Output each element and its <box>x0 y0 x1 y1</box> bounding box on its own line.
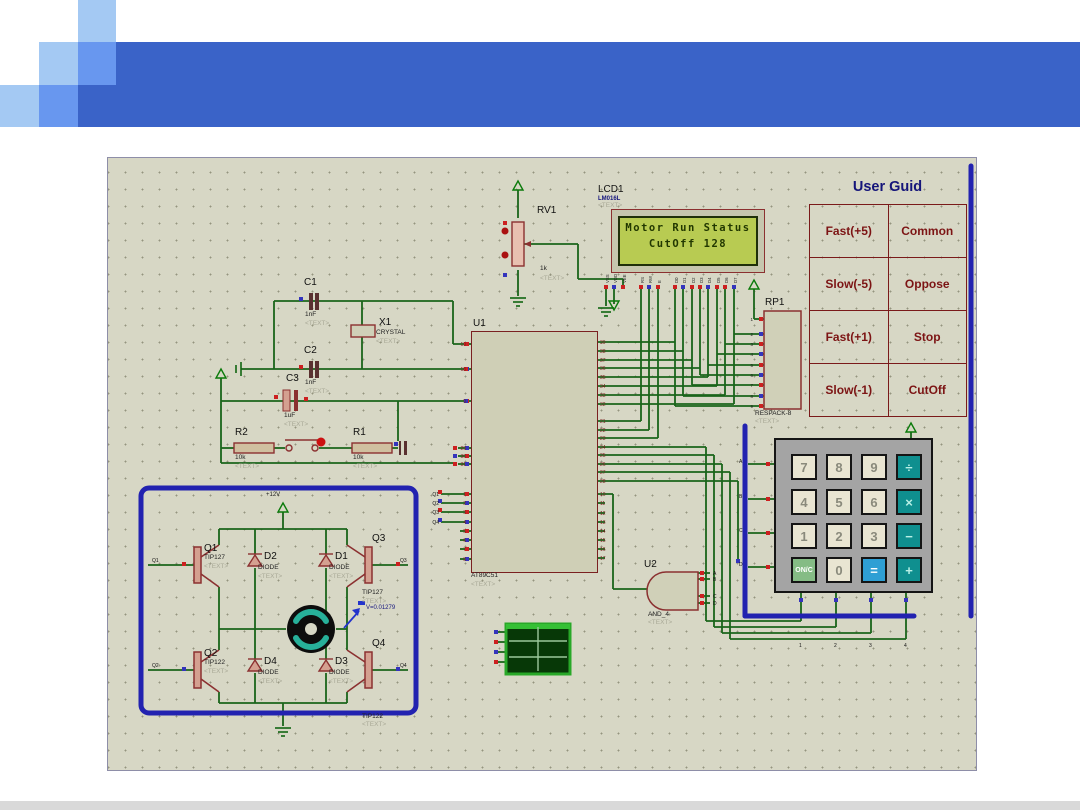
pot-pad <box>502 252 509 259</box>
header-square-light-1 <box>78 0 116 42</box>
tiny-label: Q4 <box>400 663 407 669</box>
tiny-label: 8 <box>463 557 466 563</box>
user-guide-row: Slow(-1)CutOff <box>810 364 967 417</box>
tiny-label: Q4 <box>432 520 439 526</box>
pin-square <box>799 598 803 602</box>
pin-square <box>700 594 704 598</box>
pin-square <box>732 285 736 289</box>
pin-square <box>759 317 763 321</box>
placeholder-text: <TEXT> <box>258 679 282 686</box>
pin-square <box>706 285 710 289</box>
key-ON/C[interactable]: ON/C <box>791 557 817 583</box>
pin-square <box>700 601 704 605</box>
keypad-body[interactable]: 789÷456×123−ON/C0=+ <box>774 438 933 593</box>
x1-part: CRYSTAL <box>376 330 405 337</box>
tiny-label: 5 <box>463 529 466 535</box>
tiny-label: 30 <box>460 454 466 460</box>
r1-value: 10k <box>353 455 363 462</box>
tiny-label: 24 <box>600 445 606 451</box>
tiny-label: 4 <box>904 643 907 649</box>
tiny-label: E <box>657 280 662 283</box>
header-bar <box>116 42 1080 127</box>
placeholder-text: <TEXT> <box>284 422 308 429</box>
key-3[interactable]: 3 <box>861 523 887 549</box>
c2-value: 1nF <box>305 380 316 387</box>
placeholder-text: <TEXT> <box>204 564 228 571</box>
tiny-label: 26 <box>600 462 606 468</box>
tiny-label: 29 <box>460 446 466 452</box>
tiny-label: 6 <box>463 538 466 544</box>
d3-ref: D3 <box>335 657 348 667</box>
placeholder-text: <TEXT> <box>755 419 779 426</box>
q2-ref: Q2 <box>204 649 217 659</box>
pin-square <box>612 285 616 289</box>
u2-part: AND_4 <box>648 612 669 619</box>
tiny-label: 1 <box>463 492 466 498</box>
pin-square <box>274 395 278 399</box>
placeholder-text: <TEXT> <box>598 203 622 210</box>
pin-square <box>681 285 685 289</box>
pin-square <box>766 565 770 569</box>
tiny-label: D6 <box>724 277 729 283</box>
transistor-q2[interactable] <box>194 652 201 688</box>
key-4[interactable]: 4 <box>791 489 817 515</box>
header-bar-step <box>78 85 116 127</box>
pot-ref: RV1 <box>537 206 556 216</box>
pin-square <box>759 383 763 387</box>
tiny-label: VSS <box>605 274 610 283</box>
pin-square <box>182 562 186 566</box>
placeholder-text: <TEXT> <box>305 321 329 328</box>
tiny-label: 2 <box>463 501 466 507</box>
tiny-label: D5 <box>716 277 721 283</box>
pin-square <box>673 285 677 289</box>
tiny-label: Q2 <box>152 663 159 669</box>
tiny-label: VEE <box>622 274 627 283</box>
pin-square <box>604 285 608 289</box>
pin-square <box>698 285 702 289</box>
pin-square <box>759 352 763 356</box>
tiny-label: 17 <box>600 556 606 562</box>
key-8[interactable]: 8 <box>826 454 852 480</box>
tiny-label: 27 <box>600 470 606 476</box>
key-0[interactable]: 0 <box>826 557 852 583</box>
pin-square <box>494 650 498 654</box>
d4-ref: D4 <box>264 657 277 667</box>
header-square-light-3 <box>0 85 39 127</box>
mcu-ref: U1 <box>473 319 486 329</box>
tiny-label: 19 <box>460 342 466 348</box>
tiny-label: 1 <box>750 317 753 322</box>
button-cap <box>317 438 326 447</box>
user-guide-table: Fast(+5)CommonSlow(-5)OpposeFast(+1)Stop… <box>809 204 967 417</box>
x1-ref: X1 <box>379 318 391 328</box>
tiny-label: 9 <box>463 399 466 405</box>
tiny-label: 28 <box>600 479 606 485</box>
q4-part: TIP122 <box>362 714 383 721</box>
tiny-label: D3 <box>699 277 704 283</box>
header-square-mid-2 <box>39 85 78 127</box>
transistor-q3[interactable] <box>365 547 372 583</box>
r2-ref: R2 <box>235 428 248 438</box>
placeholder-text: <TEXT> <box>329 574 353 581</box>
tiny-label: 7 <box>463 547 466 553</box>
led-display[interactable] <box>506 624 570 674</box>
d2-part: DIODE <box>258 565 279 572</box>
and-gate-u2[interactable] <box>647 572 698 610</box>
q3-part: TIP127 <box>362 590 383 597</box>
tiny-label: 38 <box>600 349 606 355</box>
push-button[interactable] <box>285 440 319 451</box>
pin-square <box>453 454 457 458</box>
tiny-label: 31 <box>460 462 466 468</box>
rp1-ref: RP1 <box>765 298 784 308</box>
tiny-label: D <box>713 601 717 607</box>
pin-square <box>304 397 308 401</box>
tiny-label: +12V <box>266 492 280 498</box>
header-square-mid-1 <box>78 42 116 85</box>
user-guide-cell-left-3: Slow(-1) <box>810 364 889 417</box>
placeholder-text: <TEXT> <box>329 679 353 686</box>
transistor-q1[interactable] <box>194 547 201 583</box>
c2-ref: C2 <box>304 346 317 356</box>
pin-square <box>453 446 457 450</box>
tiny-label: 21 <box>600 419 606 425</box>
key-7[interactable]: 7 <box>791 454 817 480</box>
d1-part: DIODE <box>329 565 350 572</box>
tiny-label: 39 <box>600 340 606 346</box>
motor-hub <box>305 623 317 635</box>
u2-ref: U2 <box>644 560 657 570</box>
capacitor-c3[interactable] <box>283 390 298 411</box>
crystal-x1[interactable] <box>351 325 375 337</box>
mcu-u1-body[interactable] <box>471 331 598 573</box>
lcd-line1: Motor Run Status <box>620 222 756 234</box>
q3-ref: Q3 <box>372 534 385 544</box>
lcd-screen: Motor Run Status CutOff 128 <box>618 216 758 266</box>
user-guide-row: Fast(+5)Common <box>810 205 967 258</box>
user-guide-row: Fast(+1)Stop <box>810 311 967 364</box>
tiny-label: D1 <box>682 277 687 283</box>
presentation-slide: 19XTAL118XTAL29RST29PSEN30ALE31EA1P1.02P… <box>0 0 1080 810</box>
resistor-r1[interactable] <box>352 443 392 453</box>
tiny-label: 36 <box>600 366 606 372</box>
tiny-label: B <box>713 577 717 583</box>
pin-square <box>766 497 770 501</box>
pin-square <box>904 598 908 602</box>
tiny-label: 33 <box>600 393 606 399</box>
pin-square <box>494 630 498 634</box>
tiny-label: VDD <box>613 274 618 283</box>
placeholder-text: <TEXT> <box>648 620 672 627</box>
pin-square <box>621 285 625 289</box>
user-guide-cell-left-1: Slow(-5) <box>810 258 889 311</box>
tiny-label: 35 <box>600 375 606 381</box>
tiny-label: 3 <box>869 643 872 649</box>
tiny-label: Q3 <box>400 558 407 564</box>
pin-square <box>759 373 763 377</box>
placeholder-text: <TEXT> <box>305 389 329 396</box>
pin-square <box>869 598 873 602</box>
tiny-label: D2 <box>691 277 696 283</box>
tiny-label: D4 <box>707 277 712 283</box>
q2-part: TIP122 <box>204 660 225 667</box>
header-square-light-2 <box>39 42 78 85</box>
pin-square <box>759 363 763 367</box>
c3-ref: C3 <box>286 374 299 384</box>
tiny-label: 13 <box>600 520 606 526</box>
placeholder-text: <TEXT> <box>353 464 377 471</box>
tiny-label: 11 <box>600 501 605 507</box>
pin-square <box>647 285 651 289</box>
tiny-label: 18 <box>460 367 466 373</box>
placeholder-text: <TEXT> <box>204 669 228 676</box>
d3-part: DIODE <box>329 670 350 677</box>
pin-square <box>723 285 727 289</box>
pin-square <box>503 273 507 277</box>
tiny-label: 4 <box>463 520 466 526</box>
tiny-label: V=0.01279 <box>366 605 396 611</box>
c3-value: 1uF <box>284 413 295 420</box>
tiny-label: D7 <box>733 277 738 283</box>
key-=[interactable]: = <box>861 557 887 583</box>
key-6[interactable]: 6 <box>861 489 887 515</box>
lcd-module[interactable]: Motor Run Status CutOff 128 <box>611 209 765 273</box>
key-×[interactable]: × <box>896 489 922 515</box>
pin-square <box>503 221 507 225</box>
q4-ref: Q4 <box>372 639 385 649</box>
key-+[interactable]: + <box>896 557 922 583</box>
d4-part: DIODE <box>258 670 279 677</box>
q1-ref: Q1 <box>204 544 217 554</box>
placeholder-text: <TEXT> <box>540 276 564 283</box>
user-guide-row: Slow(-5)Oppose <box>810 258 967 311</box>
pin-square <box>494 660 498 664</box>
tiny-label: C <box>713 594 717 600</box>
tiny-label: RW <box>648 275 653 283</box>
respack-rp1[interactable] <box>764 311 801 409</box>
tiny-label: 23 <box>600 436 606 442</box>
pot-wiper-arrow <box>524 241 531 247</box>
reset-capacitor[interactable] <box>399 441 407 455</box>
pin-square <box>299 297 303 301</box>
user-guide-cell-left-0: Fast(+5) <box>810 205 889 258</box>
placeholder-text: <TEXT> <box>376 339 400 346</box>
tiny-label: 25 <box>600 453 606 459</box>
pin-square <box>759 342 763 346</box>
pin-square <box>715 285 719 289</box>
tiny-label: 3 <box>463 510 466 516</box>
placeholder-text: <TEXT> <box>235 464 259 471</box>
key-−[interactable]: − <box>896 523 922 549</box>
pin-square <box>759 332 763 336</box>
tiny-label: D <box>739 562 743 568</box>
rp1-part: RESPACK-8 <box>755 411 791 418</box>
tiny-label: RS <box>640 277 645 283</box>
pot-value: 1k <box>540 266 547 273</box>
tiny-label: 22 <box>600 428 606 434</box>
placeholder-text: <TEXT> <box>362 722 386 729</box>
d1-ref: D1 <box>335 552 348 562</box>
key-9[interactable]: 9 <box>861 454 887 480</box>
user-guide-cell-right-3: CutOff <box>889 364 968 417</box>
pot-pad <box>502 228 509 235</box>
lcd-ref: LCD1 <box>598 185 624 195</box>
tiny-label: 34 <box>600 384 606 390</box>
tiny-label: 12 <box>600 511 606 517</box>
q1-part: TIP127 <box>204 555 225 562</box>
user-guide-cell-left-2: Fast(+1) <box>810 311 889 364</box>
key-2[interactable]: 2 <box>826 523 852 549</box>
pin-square <box>656 285 660 289</box>
tiny-label: Q1 <box>152 558 159 564</box>
c1-value: 1nF <box>305 312 316 319</box>
placeholder-text: <TEXT> <box>362 599 386 606</box>
pin-square <box>453 462 457 466</box>
tiny-label: 32 <box>600 402 606 408</box>
tiny-label: 15 <box>600 538 606 544</box>
user-guide-cell-right-2: Stop <box>889 311 968 364</box>
placeholder-text: <TEXT> <box>258 574 282 581</box>
tiny-label: A <box>739 459 743 465</box>
pin-square <box>182 667 186 671</box>
tiny-label: 14 <box>600 529 606 535</box>
tiny-label: Q1 <box>432 492 439 498</box>
d2-ref: D2 <box>264 552 277 562</box>
pin-square <box>690 285 694 289</box>
transistor-q4[interactable] <box>365 652 372 688</box>
tiny-label: Q2 <box>432 501 439 507</box>
pin-square <box>834 598 838 602</box>
r1-ref: R1 <box>353 428 366 438</box>
tiny-label: 16 <box>600 547 606 553</box>
user-guide-cell-right-0: Common <box>889 205 968 258</box>
user-guide-title: User Guid <box>809 180 966 195</box>
tiny-label: B <box>739 494 743 500</box>
tiny-label: 1 <box>799 643 802 649</box>
pin-square <box>759 404 763 408</box>
bottom-strip <box>0 801 1080 810</box>
tiny-label: 2 <box>834 643 837 649</box>
mcu-part: AT89C51 <box>471 573 498 580</box>
tiny-label: C <box>739 528 743 534</box>
tiny-label: 10 <box>600 492 606 498</box>
r2-value: 10k <box>235 455 245 462</box>
tiny-label: Q3 <box>432 510 439 516</box>
tiny-label: 37 <box>600 358 606 364</box>
tiny-label: D0 <box>674 277 679 283</box>
pin-square <box>766 462 770 466</box>
lcd-line2: CutOff 128 <box>620 238 756 250</box>
pin-square <box>700 577 704 581</box>
pin-square <box>639 285 643 289</box>
resistor-r2[interactable] <box>234 443 274 453</box>
key-1[interactable]: 1 <box>791 523 817 549</box>
pot-rv1[interactable] <box>512 222 524 266</box>
schematic-canvas: 19XTAL118XTAL29RST29PSEN30ALE31EA1P1.02P… <box>107 157 977 771</box>
pin-square <box>759 394 763 398</box>
pin-square <box>394 442 398 446</box>
pin-square <box>700 571 704 575</box>
pin-square <box>494 640 498 644</box>
user-guide-cell-right-1: Oppose <box>889 258 968 311</box>
key-5[interactable]: 5 <box>826 489 852 515</box>
c1-ref: C1 <box>304 278 317 288</box>
pin-square <box>299 365 303 369</box>
placeholder-text: <TEXT> <box>471 582 495 589</box>
key-÷[interactable]: ÷ <box>896 454 922 480</box>
pin-square <box>766 531 770 535</box>
